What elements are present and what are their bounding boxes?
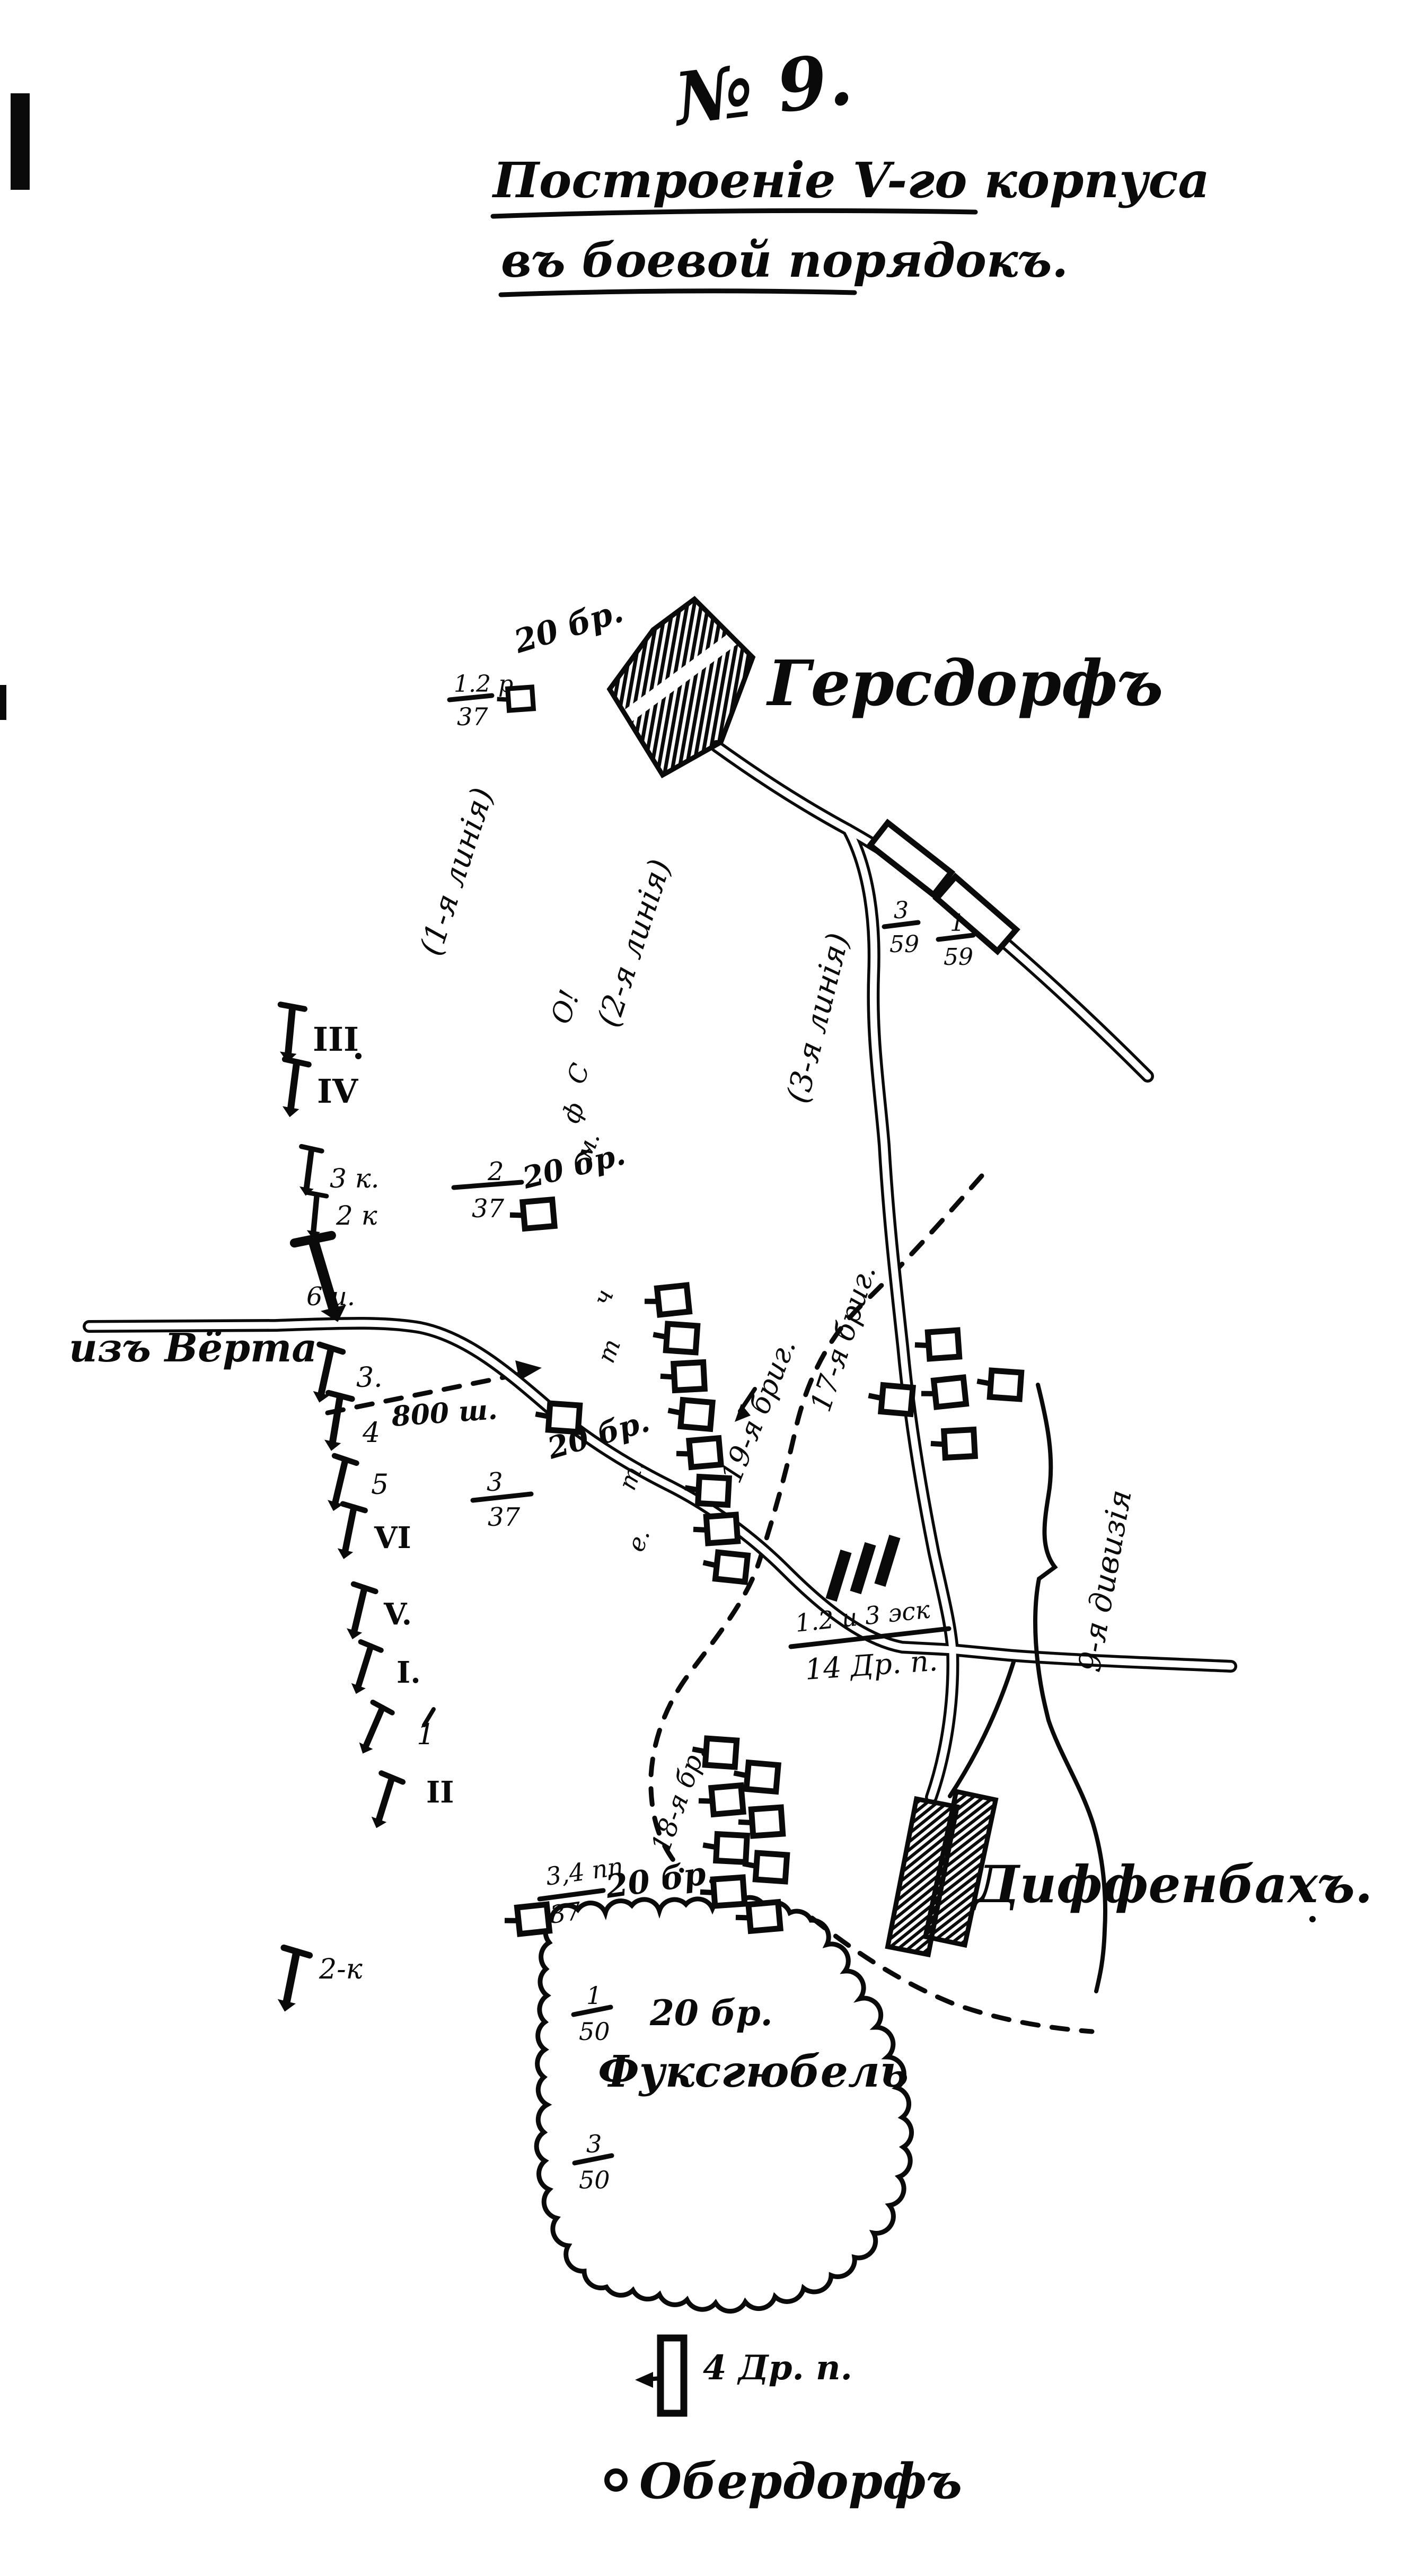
dragoons4-label: 4 Др. п.	[703, 2348, 852, 2388]
svg-text:59: 59	[944, 944, 973, 971]
svg-text:V.: V.	[383, 1597, 412, 1632]
distance-marker	[351, 1702, 393, 1757]
road-dieffenbach-east	[950, 1662, 1014, 1796]
dragoons14-group: 1.2 и 3 эск 14 Др. п.	[791, 1535, 949, 1686]
svg-text:37: 37	[472, 1194, 505, 1224]
svg-text:III: III	[313, 1020, 359, 1059]
unit-square	[667, 1399, 712, 1429]
svg-text:т: т	[592, 1335, 627, 1366]
svg-text:О!: О!	[545, 986, 586, 1028]
svg-text:1: 1	[950, 910, 965, 937]
road-from-woerth	[89, 1323, 1231, 1666]
road-gersdorf-march	[717, 746, 1148, 1076]
gersdorf-village: Герсдорфъ 20 бр. 1.2 р. 37	[450, 593, 1163, 775]
unit-square	[652, 1323, 697, 1352]
dieffenbach-village: Диффенбахъ.	[888, 1791, 1373, 1955]
svg-text:4: 4	[362, 1417, 380, 1449]
diagonal-letters: О! С ф м. ч т т. е.	[545, 986, 656, 1555]
unit-square	[930, 1430, 975, 1458]
oberdorf-label: Обердорфъ	[639, 2452, 962, 2510]
svg-text:5: 5	[371, 1469, 389, 1501]
svg-text:I.: I.	[397, 1655, 421, 1690]
from-woerth-label: изъ Вёрта	[69, 1325, 317, 1371]
svg-text:3: 3	[894, 897, 909, 924]
distance-marker	[343, 1642, 382, 1697]
svg-text:С: С	[561, 1059, 596, 1088]
svg-text:2 к: 2 к	[336, 1200, 377, 1231]
unit-square	[644, 1285, 690, 1316]
unit-square	[920, 1377, 966, 1408]
svg-text:е.: е.	[621, 1525, 656, 1555]
svg-text:ф: ф	[556, 1098, 591, 1127]
title-underline-2	[501, 291, 855, 295]
unit-square	[504, 1904, 550, 1935]
svg-text:37: 37	[488, 1502, 521, 1532]
gersdorf-label: Герсдорфъ	[766, 646, 1163, 720]
second-line-group: 2 37 20 бр.	[454, 1137, 629, 1230]
svg-text:ч: ч	[587, 1285, 620, 1309]
distance-marker	[339, 1584, 376, 1642]
svg-text:1: 1	[586, 1981, 602, 2010]
brigade19-group: 19-я бриг.	[715, 1334, 803, 1487]
svg-text:59: 59	[889, 931, 919, 958]
distance-label: 800 ш.	[390, 1393, 499, 1433]
title-underline-1	[493, 210, 975, 216]
distance-marker	[272, 1005, 304, 1063]
march-rect	[870, 823, 951, 895]
distance-marker	[330, 1504, 365, 1561]
svg-text:3 к.: 3 к.	[330, 1163, 379, 1194]
distance-marker	[316, 1393, 352, 1453]
map-title: № 9. Построеніе V-го корпуса въ боевой п…	[491, 36, 1210, 295]
unit-square	[867, 1384, 913, 1414]
line3-caption: (3-я линія)	[779, 929, 856, 1107]
unit-square	[509, 1200, 554, 1230]
map-canvas: № 9. Построеніе V-го корпуса въ боевой п…	[0, 0, 1427, 2576]
forest-boundary	[536, 1897, 911, 2311]
svg-text:IV: IV	[317, 1072, 358, 1111]
distance-marker	[294, 1234, 352, 1327]
fuchs-brigade-label: 20 бр.	[649, 1992, 773, 2034]
fuchshuebel-label: Фуксгюбель	[598, 2046, 909, 2097]
dieffenbach-label: Диффенбахъ.	[972, 1854, 1372, 1914]
svg-text:14 Др. п.: 14 Др. п.	[804, 1644, 939, 1686]
svg-text:6 и.: 6 и.	[306, 1282, 355, 1312]
march-columns: 3 59 1 59	[870, 823, 1016, 971]
svg-text:2-к: 2-к	[319, 1954, 363, 1985]
line1-caption: (1-я линія)	[412, 783, 500, 960]
battle-line-captions: (1-я линія) (2-я линія) (3-я линія)	[412, 783, 856, 1106]
brigade17-label: 17-я бриг.	[804, 1261, 882, 1416]
distance-marker	[293, 1147, 322, 1198]
fuchshuebel-group: 1 50 20 бр. Фуксгюбель 3 50	[574, 1981, 909, 2194]
infantry37-group: 3,4 пп 37 20 бр.	[504, 1852, 719, 1936]
left-marker-column: III IV 3 к. 2 к 6 и. 3. 4 5 VI V. I. 1 I…	[269, 1005, 454, 2014]
unit-square	[914, 1330, 959, 1360]
dragoons4-group: 4 Др. п.	[635, 2338, 852, 2413]
brigade19-label: 19-я бриг.	[715, 1334, 803, 1487]
unit-square	[698, 1786, 743, 1816]
division9-label: 9-я дивизія	[1071, 1487, 1139, 1675]
march-fraction-1: 3 59	[884, 897, 919, 958]
title-line-1: Построеніе V-го корпуса	[491, 152, 1210, 209]
svg-text:50: 50	[579, 2017, 610, 2046]
map-number: № 9.	[668, 36, 857, 142]
distance-marker	[363, 1773, 403, 1832]
svg-text:37: 37	[548, 1896, 583, 1929]
unit-square	[702, 1551, 748, 1581]
gersdorf-brigade-label: 20 бр.	[509, 593, 628, 661]
svg-text:37: 37	[457, 702, 488, 731]
svg-text:VI: VI	[374, 1520, 411, 1555]
oberdorf-group: Обердорфъ	[607, 2452, 962, 2510]
unit-square	[976, 1369, 1021, 1399]
unit-square	[675, 1438, 721, 1469]
svg-text:50: 50	[579, 2166, 610, 2194]
scan-artifacts	[0, 93, 1316, 1922]
unit-square	[660, 1362, 705, 1391]
unit-square	[692, 1515, 737, 1544]
distance-marker	[269, 1948, 310, 2014]
svg-text:II: II	[426, 1775, 454, 1810]
line2-caption: (2-я линія)	[590, 855, 678, 1031]
svg-text:3.: 3.	[356, 1362, 383, 1394]
svg-text:3: 3	[586, 2130, 602, 2158]
distance-marker	[275, 1059, 309, 1119]
svg-text:3: 3	[487, 1467, 503, 1497]
title-line-2: въ боевой порядокъ.	[501, 233, 1068, 288]
